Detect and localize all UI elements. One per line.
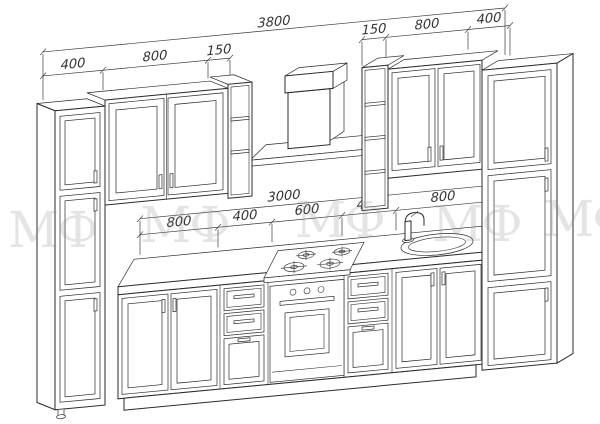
watermark-text: МФ	[8, 201, 97, 259]
oven	[270, 279, 344, 382]
hood-duct-body	[288, 89, 330, 149]
watermark-text: МФ	[432, 195, 521, 253]
door-handle	[238, 338, 250, 342]
watermark-text: МФ	[295, 191, 384, 249]
dim-upper-left-1: 800	[143, 48, 168, 65]
door-handle	[170, 174, 173, 188]
watermark-text: МФ	[140, 196, 229, 254]
door-handle	[545, 288, 548, 301]
adjustable-foot	[57, 409, 66, 419]
door-handle	[431, 273, 434, 286]
dim-upper-right-1: 800	[415, 16, 440, 33]
door-handle	[159, 175, 162, 189]
door-handle	[442, 272, 445, 285]
wall-cabinet-left-800	[87, 79, 228, 206]
dim-upper-right-2: 400	[477, 10, 502, 27]
door-handle	[440, 146, 443, 160]
dim-total-top: 3800	[257, 13, 290, 31]
watermark-text: МФ	[543, 190, 600, 248]
door-handle	[173, 298, 176, 311]
door-handle	[94, 299, 97, 311]
lattice-glass	[175, 100, 216, 187]
door-handle	[162, 299, 165, 312]
dim-upper-left-2: 150	[207, 42, 232, 59]
dim-upper-right-0: 150	[362, 21, 387, 38]
door-handle	[428, 147, 431, 161]
hood-duct-side	[330, 80, 344, 140]
dim-base-1: 400	[233, 208, 258, 225]
lattice-glass	[444, 71, 474, 160]
lattice-glass	[398, 75, 429, 164]
door-handle	[362, 326, 374, 330]
lattice-glass	[116, 106, 157, 193]
dim-upper-left-0: 400	[61, 56, 86, 73]
tall-cabinet-left-400	[37, 97, 105, 421]
kitchen-technical-drawing-page: 3800 400 800 150 150 800 400 3000 800 40…	[0, 0, 600, 424]
kitchen-drawing-svg: 3800 400 800 150 150 800 400 3000 800 40…	[0, 0, 600, 424]
door-handle	[94, 171, 97, 183]
door-handle	[545, 148, 548, 161]
